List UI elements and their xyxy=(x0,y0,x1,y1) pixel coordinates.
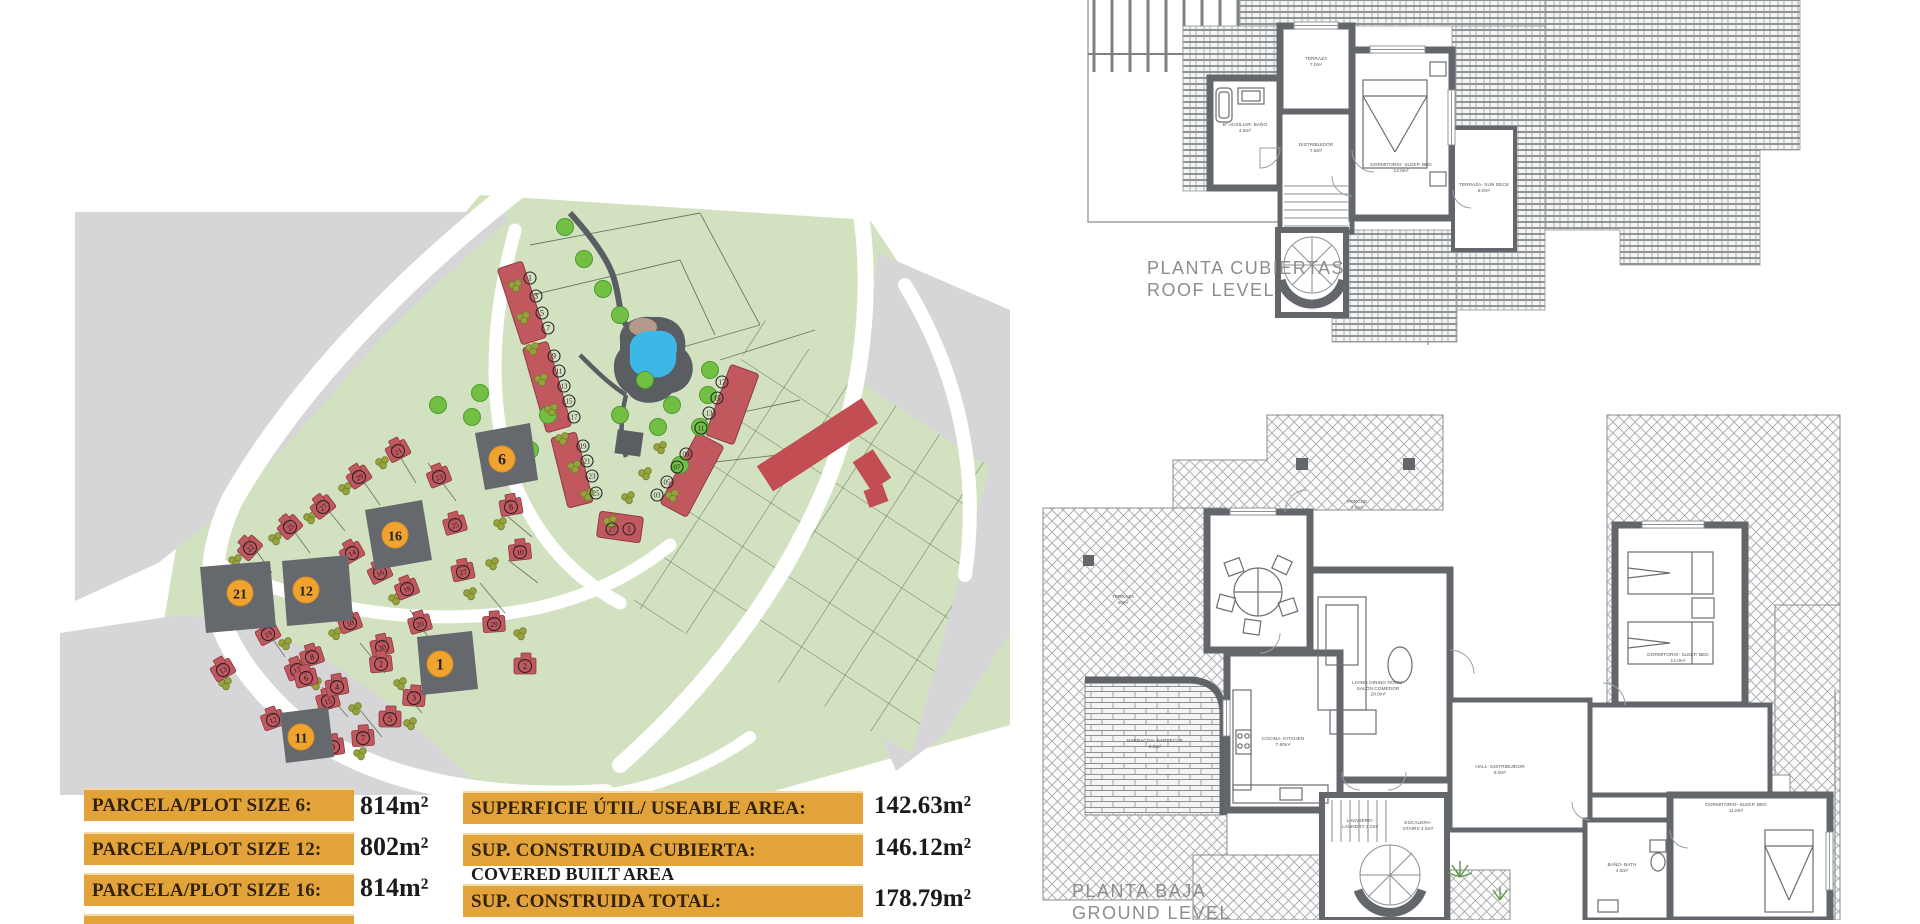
svg-text:17: 17 xyxy=(571,414,579,422)
svg-text:12: 12 xyxy=(299,585,313,600)
highlight-plot-marker: 1 xyxy=(417,631,478,695)
bedroom-2 xyxy=(1670,795,1830,920)
svg-text:19: 19 xyxy=(580,443,588,451)
tree-icon xyxy=(430,397,447,414)
room-label: ESCALERA-STAIRS 4.5m² xyxy=(1403,820,1434,832)
tree-icon xyxy=(576,251,593,268)
svg-text:6: 6 xyxy=(498,452,506,469)
svg-text:5: 5 xyxy=(388,714,392,724)
tree-icon xyxy=(595,281,612,298)
svg-text:13: 13 xyxy=(561,383,569,391)
plot-size-12-value: 802m² xyxy=(360,830,428,863)
ground-level-plan: PLANTA BAJA GROUND LEVEL PORCHE7.0m²TERR… xyxy=(1030,400,1845,920)
roof-hall xyxy=(1280,112,1352,232)
svg-text:03: 03 xyxy=(654,492,662,500)
plot-size-partial-row xyxy=(84,914,354,924)
svg-text:11: 11 xyxy=(698,425,705,433)
highlight-plot-marker: 21 xyxy=(200,561,276,633)
site-plan: 2225272921231416182010302527810292191715… xyxy=(60,165,1010,795)
plot-size-16-label: PARCELA/PLOT SIZE 16: xyxy=(84,873,354,906)
svg-text:11: 11 xyxy=(556,368,563,376)
swimming-pool xyxy=(630,331,677,378)
corridor xyxy=(1590,705,1770,795)
svg-text:10: 10 xyxy=(516,547,525,557)
tree-icon xyxy=(557,219,574,236)
tree-icon xyxy=(612,307,629,324)
svg-text:05: 05 xyxy=(664,479,672,487)
covered-built-area-value: 146.12m² xyxy=(874,831,971,864)
plot-size-16-value: 814m² xyxy=(360,871,428,904)
plot-size-6-value: 814m² xyxy=(360,789,428,822)
svg-text:7: 7 xyxy=(546,324,550,333)
svg-text:27: 27 xyxy=(609,526,617,534)
svg-text:23: 23 xyxy=(589,473,597,481)
kitchen xyxy=(1227,653,1340,810)
svg-text:15: 15 xyxy=(566,398,574,406)
svg-text:13: 13 xyxy=(706,410,714,418)
svg-text:7: 7 xyxy=(361,733,366,743)
tree-icon xyxy=(637,372,654,389)
roof-terrace-room xyxy=(1280,26,1352,112)
tree-icon xyxy=(650,419,667,436)
total-built-area-value: 178.79m² xyxy=(874,882,971,915)
svg-text:5: 5 xyxy=(540,309,544,318)
svg-text:3: 3 xyxy=(412,693,417,703)
plot-size-12-label: PARCELA/PLOT SIZE 12: xyxy=(84,832,354,865)
plan-sheet: { "table": { "left": [ {"label":"PARCELA… xyxy=(0,0,1920,920)
svg-text:21: 21 xyxy=(233,588,247,603)
svg-text:15: 15 xyxy=(714,395,722,403)
roof-plan-title-en: ROOF LEVEL xyxy=(1147,280,1275,300)
highlight-plot-marker: 11 xyxy=(280,707,334,763)
ground-plan-title-es: PLANTA BAJA xyxy=(1072,881,1206,901)
svg-text:25: 25 xyxy=(593,490,601,498)
svg-text:2: 2 xyxy=(523,661,527,671)
plot-spec-table: PARCELA/PLOT SIZE 6: 814m² PARCELA/PLOT … xyxy=(84,788,984,920)
highlight-plot-marker: 12 xyxy=(282,555,353,626)
pillar xyxy=(1403,458,1415,470)
tree-icon xyxy=(464,409,481,426)
svg-text:1: 1 xyxy=(627,525,631,534)
tree-icon xyxy=(472,385,489,402)
highlight-plot-marker: 6 xyxy=(475,423,538,490)
roof-bedroom xyxy=(1352,50,1452,218)
highlight-plot-marker: 16 xyxy=(365,500,432,570)
useable-area-value: 142.63m² xyxy=(874,789,971,822)
roof-level-plan: PLANTA CUBIERTAS ROOF LEVEL TERRAZA7.0m²… xyxy=(1060,0,1830,345)
svg-text:16: 16 xyxy=(388,530,402,545)
covered-built-area-sub: COVERED BUILT AREA xyxy=(471,864,674,885)
svg-text:11: 11 xyxy=(294,732,307,747)
svg-text:21: 21 xyxy=(584,458,592,466)
covered-built-area-label: SUP. CONSTRUIDA CUBIERTA: xyxy=(463,833,863,866)
roof-plan-title-es: PLANTA CUBIERTAS xyxy=(1147,258,1345,278)
svg-text:17: 17 xyxy=(719,379,727,387)
svg-text:1: 1 xyxy=(436,657,444,674)
park-platform xyxy=(614,429,643,456)
total-built-area-label: SUP. CONSTRUIDA TOTAL: xyxy=(463,884,863,917)
svg-text:29: 29 xyxy=(490,620,498,630)
svg-text:09: 09 xyxy=(683,451,691,459)
pillar xyxy=(1296,458,1308,470)
svg-text:1: 1 xyxy=(528,274,532,283)
svg-text:07: 07 xyxy=(674,464,682,472)
tree-icon xyxy=(664,397,681,414)
ground-plan-title-en: GROUND LEVEL xyxy=(1072,903,1231,920)
svg-text:9: 9 xyxy=(552,352,556,361)
room-label: LAVADERO-LAUNDRY 3.0m² xyxy=(1342,818,1379,830)
tree-icon xyxy=(702,362,719,379)
useable-area-label: SUPERFICIE ÚTIL/ USEABLE AREA: xyxy=(463,791,863,824)
tree-icon xyxy=(612,407,629,424)
plot-size-6-label: PARCELA/PLOT SIZE 6: xyxy=(84,788,354,821)
svg-text:3: 3 xyxy=(534,292,538,301)
